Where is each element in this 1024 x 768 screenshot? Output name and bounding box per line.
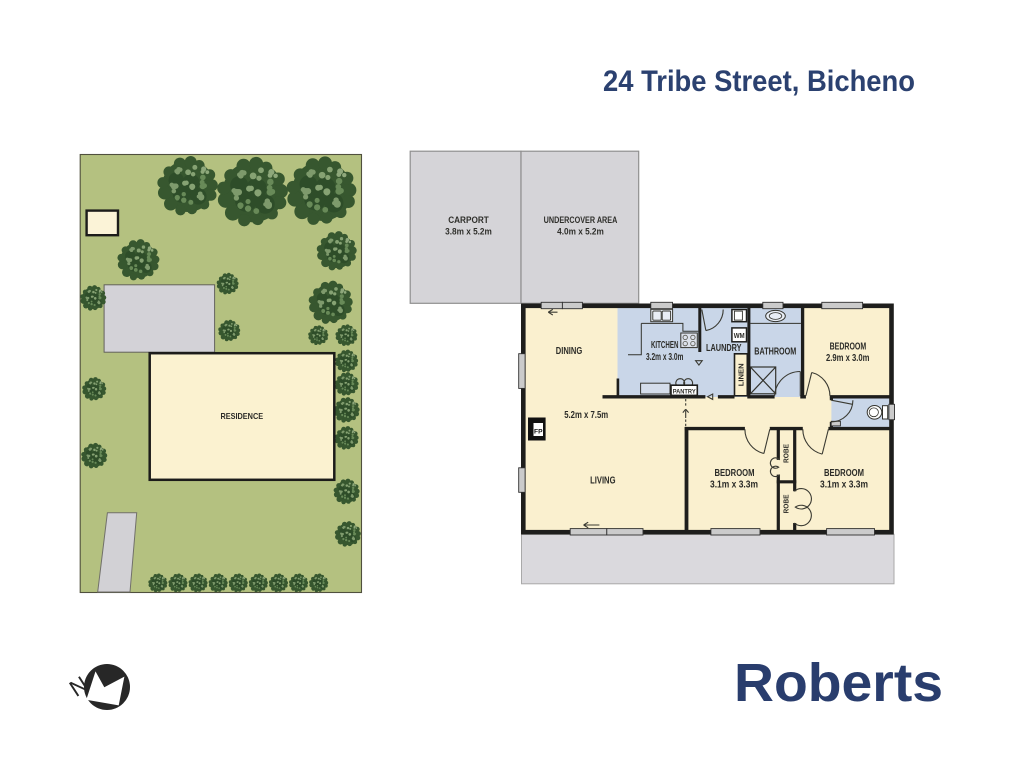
svg-text:FP: FP xyxy=(534,429,543,436)
svg-text:3.1m x 3.3m: 3.1m x 3.3m xyxy=(710,480,758,491)
svg-text:BEDROOM: BEDROOM xyxy=(824,468,864,479)
svg-text:2.9m x 3.0m: 2.9m x 3.0m xyxy=(826,353,869,364)
svg-text:3.2m x 3.0m: 3.2m x 3.0m xyxy=(646,352,684,363)
svg-text:ROBE: ROBE xyxy=(781,444,790,463)
svg-text:LINEN: LINEN xyxy=(737,363,746,386)
svg-text:3.1m x 3.3m: 3.1m x 3.3m xyxy=(820,480,868,491)
svg-text:KITCHEN: KITCHEN xyxy=(651,340,679,351)
svg-text:3.8m x 5.2m: 3.8m x 5.2m xyxy=(445,227,492,237)
svg-text:BATHROOM: BATHROOM xyxy=(754,347,796,358)
svg-text:BEDROOM: BEDROOM xyxy=(715,468,755,479)
svg-text:PANTRY: PANTRY xyxy=(673,389,696,396)
svg-text:BEDROOM: BEDROOM xyxy=(830,341,867,352)
svg-text:DINING: DINING xyxy=(556,346,583,357)
svg-text:CARPORT: CARPORT xyxy=(448,215,489,225)
svg-text:5.2m x 7.5m: 5.2m x 7.5m xyxy=(564,410,608,421)
svg-text:LIVING: LIVING xyxy=(590,475,616,486)
svg-text:UNDERCOVER AREA: UNDERCOVER AREA xyxy=(544,215,618,225)
svg-text:WM: WM xyxy=(734,333,745,340)
svg-text:Roberts: Roberts xyxy=(734,653,943,713)
svg-text:LAUNDRY: LAUNDRY xyxy=(706,343,742,354)
svg-text:RESIDENCE: RESIDENCE xyxy=(220,411,263,421)
svg-text:ROBE: ROBE xyxy=(781,495,790,514)
svg-text:4.0m x 5.2m: 4.0m x 5.2m xyxy=(557,227,604,237)
svg-text:24 Tribe Street, Bicheno: 24 Tribe Street, Bicheno xyxy=(603,65,915,98)
